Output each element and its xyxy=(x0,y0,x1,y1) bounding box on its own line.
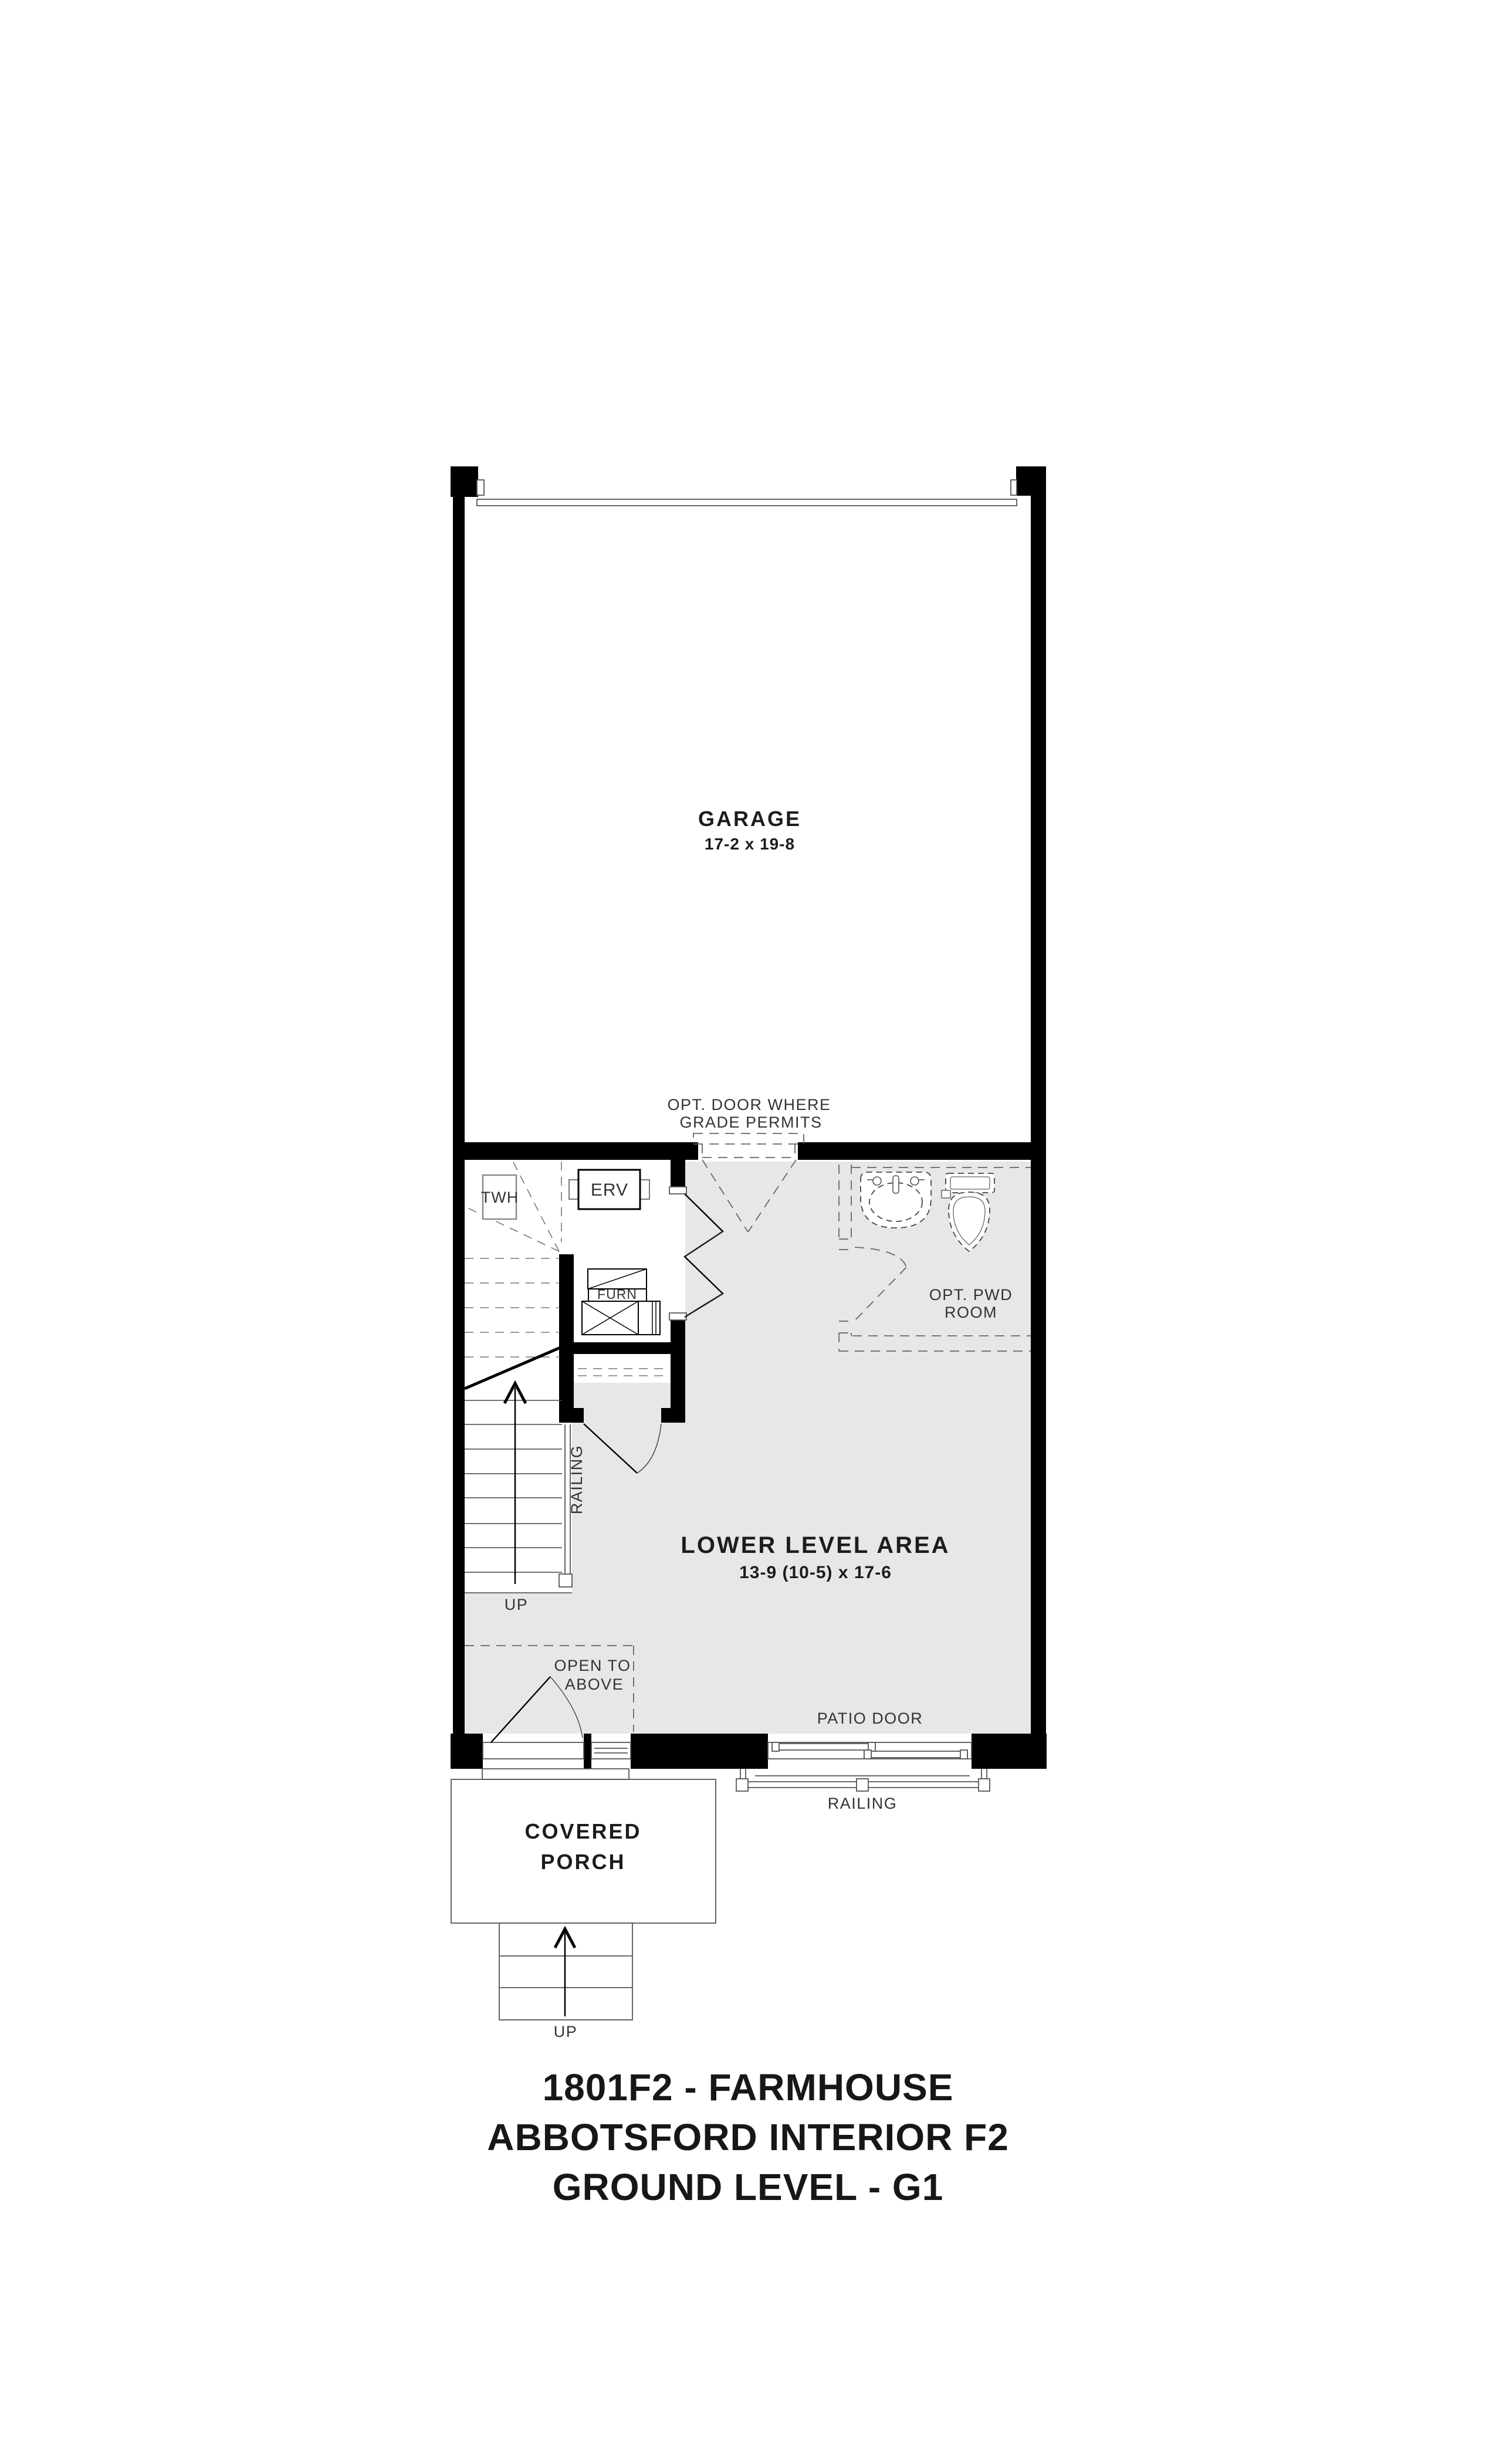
pwd-room-label-line2: ROOM xyxy=(945,1304,997,1321)
porch-label-line1: COVERED xyxy=(524,1819,641,1843)
porch-steps xyxy=(499,1923,632,2020)
door-jamb xyxy=(661,1408,671,1423)
up-porch-label: UP xyxy=(554,2023,578,2040)
open-to-above-line2: ABOVE xyxy=(565,1676,624,1693)
lower-level-floor-shading xyxy=(465,1162,1031,1734)
railing-post xyxy=(736,1779,748,1791)
wall-mid-left xyxy=(465,1142,698,1160)
wall-closet-stub xyxy=(671,1160,685,1187)
up-stair-label: UP xyxy=(505,1596,529,1613)
door-stop xyxy=(669,1187,686,1194)
wall-closet-top xyxy=(559,1342,671,1354)
wall-mid-right xyxy=(798,1142,1031,1160)
lower-level-dims: 13-9 (10-5) x 17-6 xyxy=(739,1563,892,1582)
lower-level-label: LOWER LEVEL AREA xyxy=(681,1532,950,1558)
floor-plan-drawing: TWH ERV FURN xyxy=(0,0,1496,2464)
title-line2: ABBOTSFORD INTERIOR F2 xyxy=(487,2116,1009,2158)
railing-post xyxy=(979,1779,990,1791)
staircase xyxy=(465,1162,572,1593)
wall-front-left-pier xyxy=(451,1734,483,1769)
newel-post xyxy=(559,1574,572,1587)
covered-porch xyxy=(451,1779,716,2020)
sink-fixture xyxy=(861,1172,931,1228)
wall-right xyxy=(1031,496,1046,1734)
erv-label: ERV xyxy=(591,1180,628,1200)
furnace-label: FURN xyxy=(597,1287,637,1302)
garage-dims: 17-2 x 19-8 xyxy=(705,835,795,853)
railing-patio-label: RAILING xyxy=(828,1795,898,1812)
porch-label-line2: PORCH xyxy=(540,1850,625,1874)
wall-pier-top-left xyxy=(451,466,478,497)
wall-front-mid xyxy=(631,1734,768,1769)
erv-unit: ERV xyxy=(569,1170,649,1209)
garage-label: GARAGE xyxy=(698,807,801,831)
pwd-room-label-line1: OPT. PWD xyxy=(929,1286,1013,1304)
title-block: 1801F2 - FARMHOUSE ABBOTSFORD INTERIOR F… xyxy=(487,2066,1009,2208)
twh-unit: TWH xyxy=(481,1175,519,1219)
railing-post xyxy=(857,1779,868,1791)
wall-front-mull xyxy=(584,1734,591,1769)
title-line1: 1801F2 - FARMHOUSE xyxy=(543,2066,954,2108)
entry-stoop xyxy=(482,1769,629,1779)
sidelite-window xyxy=(591,1742,631,1759)
wall-stair-center xyxy=(559,1254,574,1423)
door-jamb xyxy=(574,1408,584,1423)
twh-label: TWH xyxy=(481,1189,519,1206)
patio-door xyxy=(768,1742,972,1759)
door-stop xyxy=(669,1313,686,1320)
wall-pier-top-right xyxy=(1016,466,1046,496)
patio-railing xyxy=(736,1769,990,1791)
wall-front-right-pier xyxy=(972,1734,1047,1769)
door-stop xyxy=(477,480,484,495)
opt-door-note-line1: OPT. DOOR WHERE xyxy=(667,1096,831,1113)
wall-closet-right xyxy=(671,1320,685,1423)
door-stop xyxy=(1011,480,1017,495)
floor-plan-page: TWH ERV FURN xyxy=(0,0,1496,2464)
furnace-unit: FURN xyxy=(582,1269,660,1335)
wall-left xyxy=(453,496,465,1734)
opt-door-note-line2: GRADE PERMITS xyxy=(679,1113,822,1131)
patio-door-label: PATIO DOOR xyxy=(817,1710,923,1727)
garage-door xyxy=(477,480,1017,506)
open-to-above-line1: OPEN TO xyxy=(554,1657,631,1674)
railing-stair-label: RAILING xyxy=(568,1445,585,1515)
title-line3: GROUND LEVEL - G1 xyxy=(553,2166,944,2208)
